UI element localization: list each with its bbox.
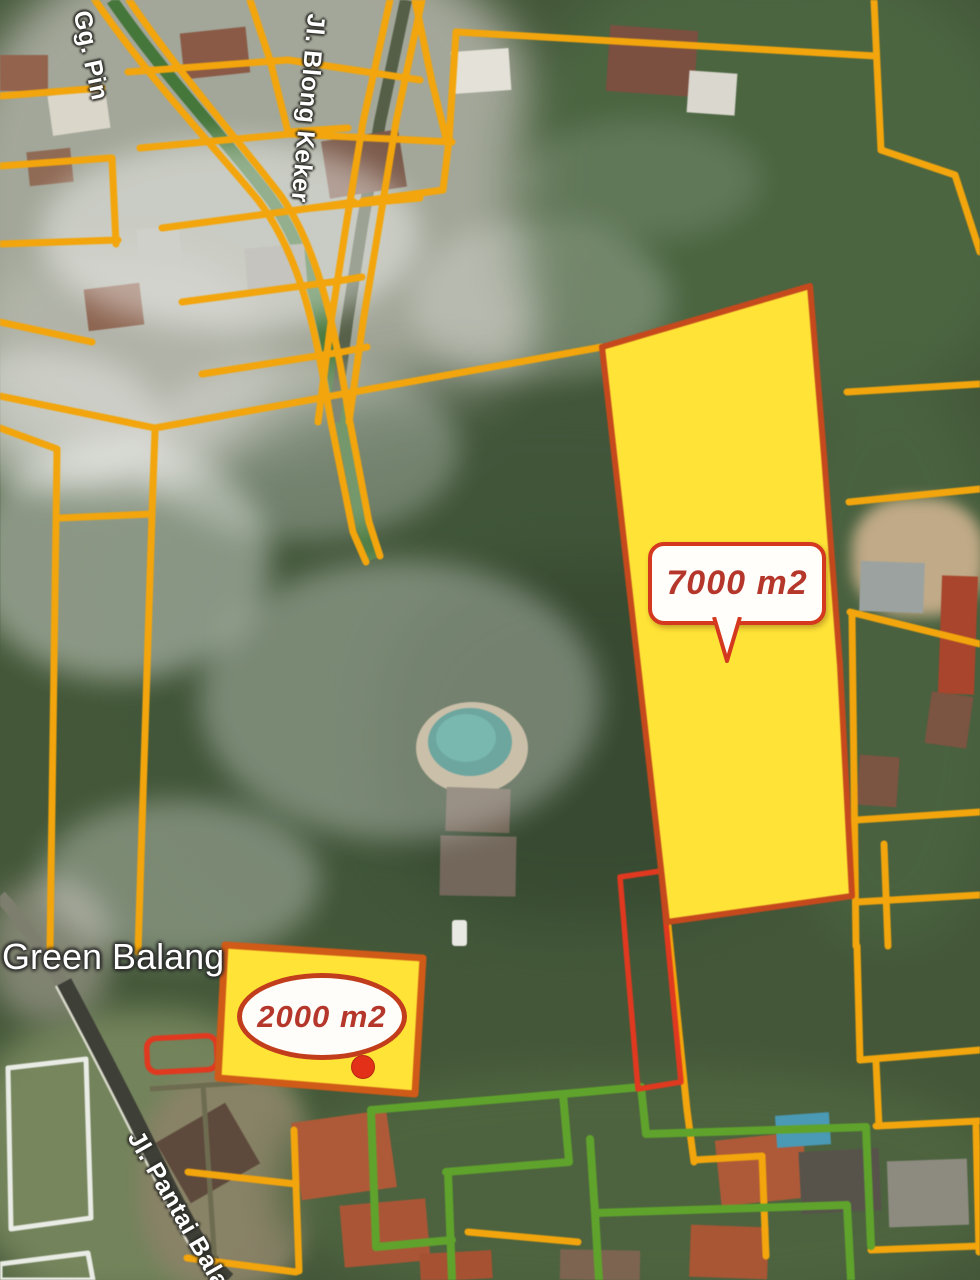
plot-2000-area-label: 2000 m2 (257, 999, 386, 1035)
plot-7000-callout: 7000 m2 (648, 542, 826, 625)
parked-car (452, 920, 467, 946)
plot-2000-callout: 2000 m2 (237, 973, 407, 1060)
bubble-tail-pointer (710, 617, 746, 667)
plot-7000-area-label: 7000 m2 (666, 564, 807, 603)
map-canvas[interactable]: Gg. Pin Jl. Blong Keker Jl. Pantai Balan… (0, 0, 980, 1280)
red-strip-small (146, 1035, 218, 1073)
white-lot-outlines (0, 1059, 93, 1280)
map-overlay-svg (0, 0, 980, 1280)
place-label-green-balang: Green Balang (2, 936, 224, 978)
plot-2000-callout-dot (351, 1055, 375, 1079)
